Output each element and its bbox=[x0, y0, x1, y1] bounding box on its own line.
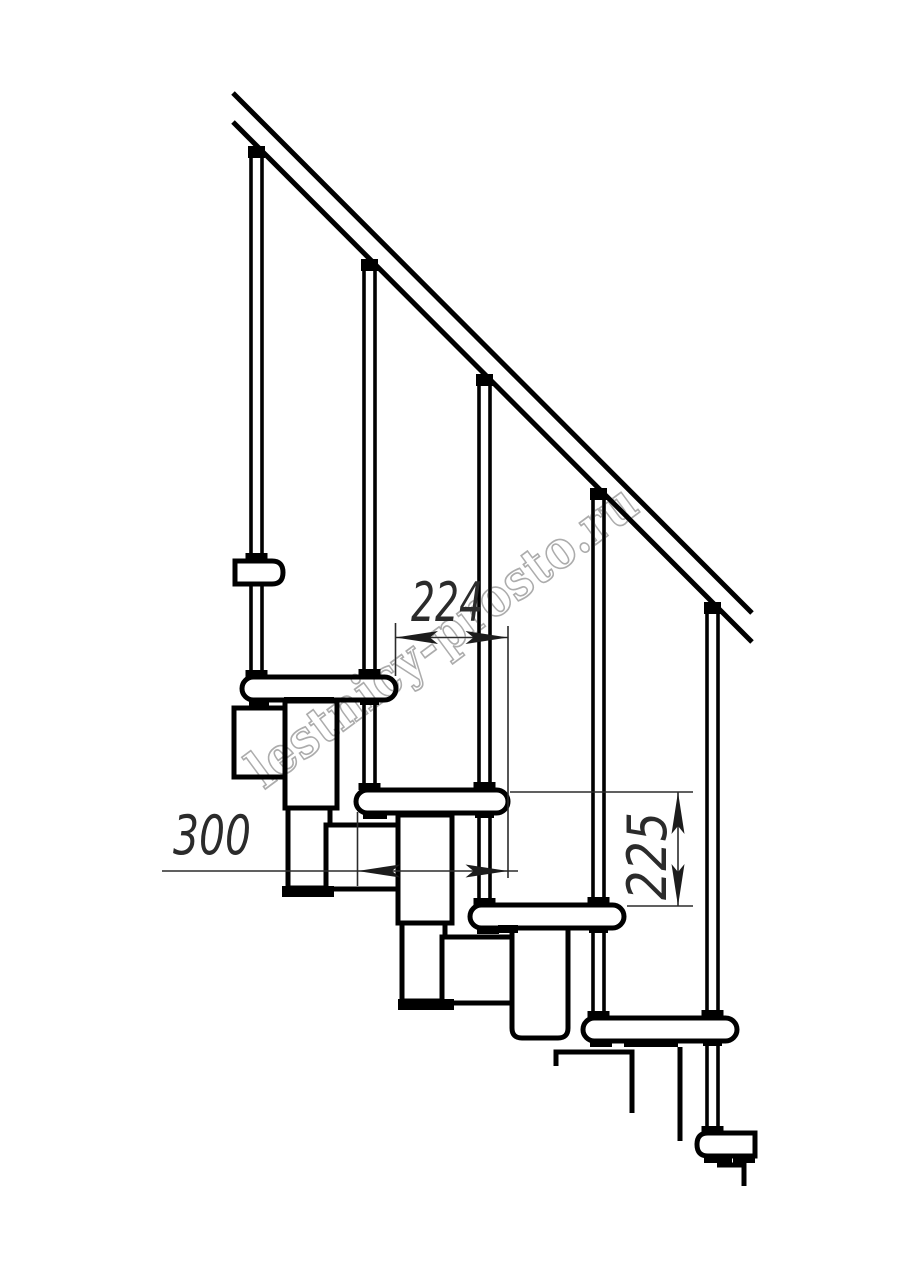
tread-foot bbox=[590, 1041, 612, 1047]
tread-foot bbox=[704, 1156, 732, 1163]
dimension-value-tread-length: 300 bbox=[173, 804, 251, 867]
baluster-terminal-icon bbox=[474, 898, 496, 905]
rail-cap-icon bbox=[361, 259, 378, 271]
baluster-terminal-icon bbox=[588, 1011, 610, 1018]
baluster-terminal-icon bbox=[359, 783, 381, 790]
tread-foot bbox=[703, 1041, 722, 1046]
module-contact-band bbox=[410, 811, 452, 817]
baluster-fitting-icon bbox=[702, 1010, 724, 1018]
baluster-fitting-icon bbox=[588, 897, 610, 905]
rail-cap-icon bbox=[704, 602, 721, 614]
tread-5-partial bbox=[697, 1133, 755, 1156]
rail-cap-icon bbox=[476, 374, 493, 386]
handrail-top-line bbox=[233, 93, 752, 613]
module-collar-2 bbox=[442, 937, 517, 1003]
dimension-value-rise: 225 bbox=[616, 812, 679, 900]
tread-foot bbox=[589, 928, 608, 933]
module-collar-1 bbox=[326, 825, 405, 889]
baluster-rail-caps bbox=[248, 146, 721, 614]
tread-foot bbox=[477, 928, 499, 934]
module-collar-3-partial bbox=[556, 1052, 632, 1113]
tread-foot bbox=[363, 813, 387, 819]
tread-2 bbox=[356, 790, 508, 813]
tread-foot bbox=[249, 700, 269, 706]
pipe-cap-icon bbox=[398, 999, 454, 1010]
baluster-fitting-icon bbox=[246, 553, 268, 561]
baluster-terminal-icon bbox=[246, 670, 268, 677]
module-box-2 bbox=[398, 815, 452, 923]
watermark-text: lestnicy-prosto.ru bbox=[235, 472, 649, 801]
tread-4 bbox=[583, 1018, 737, 1041]
module-contact-band bbox=[498, 925, 518, 933]
module-contact-band bbox=[624, 1040, 678, 1047]
baluster-5 bbox=[707, 612, 718, 1133]
rail-cap-icon bbox=[248, 146, 265, 158]
pipe-cap-icon bbox=[282, 886, 334, 897]
staircase-drawing: 224 300 225 lestnicy-prosto.ru bbox=[0, 0, 914, 1280]
baluster-fitting-icon bbox=[474, 782, 496, 790]
staircase-drawing-page: 224 300 225 lestnicy-prosto.ru bbox=[0, 0, 914, 1280]
baluster-1 bbox=[251, 156, 262, 677]
baluster-4 bbox=[593, 498, 604, 1018]
tread-3 bbox=[470, 905, 624, 928]
baluster-terminal-icon bbox=[702, 1126, 724, 1133]
module-box-3 bbox=[512, 928, 568, 1038]
module-pipe-2 bbox=[402, 923, 445, 1001]
tread-upper-partial bbox=[235, 561, 283, 584]
module-5-partial bbox=[717, 1165, 744, 1186]
handrail bbox=[233, 93, 752, 642]
tread-foot bbox=[733, 1154, 755, 1163]
tread-foot bbox=[475, 813, 494, 818]
